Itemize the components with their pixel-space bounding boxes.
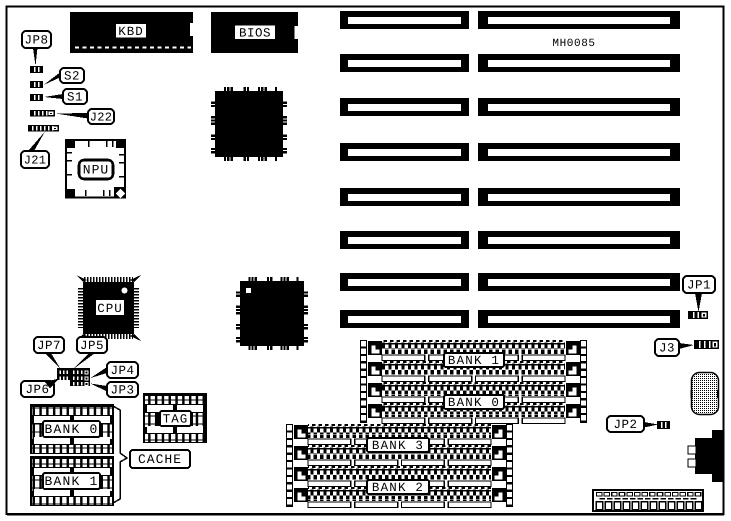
svg-text:S2: S2 (64, 70, 80, 84)
svg-text:TAG: TAG (163, 413, 189, 427)
svg-text:J21: J21 (24, 154, 47, 168)
svg-text:BANK 0: BANK 0 (44, 422, 98, 437)
svg-text:CPU: CPU (97, 302, 123, 316)
svg-text:JP7: JP7 (37, 339, 61, 353)
svg-text:J3: J3 (659, 342, 675, 356)
svg-text:JP2: JP2 (613, 418, 637, 432)
svg-text:JP3: JP3 (110, 384, 134, 398)
svg-text:BANK 2: BANK 2 (372, 481, 424, 495)
svg-text:S1: S1 (67, 91, 83, 105)
svg-text:J22: J22 (90, 111, 113, 125)
svg-text:JP8: JP8 (24, 34, 48, 48)
svg-text:MH0085: MH0085 (552, 38, 595, 50)
svg-text:KBD: KBD (118, 25, 144, 39)
svg-text:BANK 1: BANK 1 (44, 474, 98, 489)
svg-text:BIOS: BIOS (239, 27, 271, 41)
svg-text:JP1: JP1 (687, 279, 711, 293)
svg-text:NPU: NPU (83, 163, 109, 178)
svg-text:CACHE: CACHE (138, 452, 182, 467)
svg-text:JP4: JP4 (110, 364, 134, 378)
svg-text:BANK 3: BANK 3 (372, 439, 424, 453)
svg-text:BANK 1: BANK 1 (448, 354, 500, 368)
svg-text:JP5: JP5 (80, 339, 104, 353)
svg-text:BANK 0: BANK 0 (448, 396, 500, 410)
svg-text:JP6: JP6 (25, 383, 49, 397)
